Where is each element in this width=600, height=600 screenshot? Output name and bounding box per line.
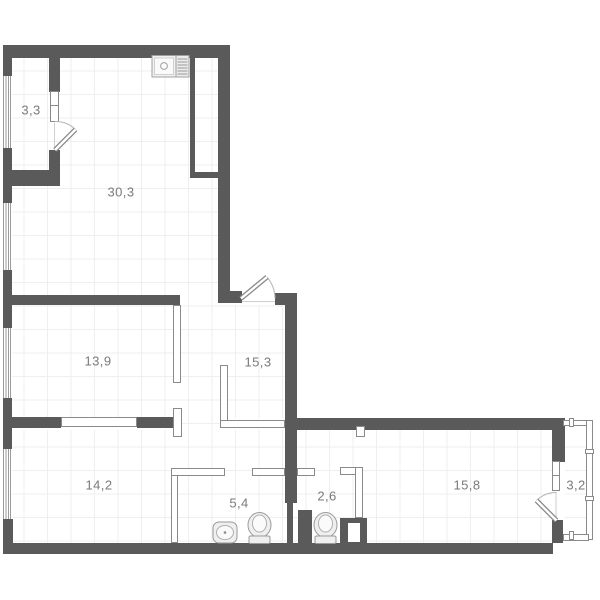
wall-band-left-b [137,417,175,428]
room-label-kitchen-living: 30,3 [108,185,135,200]
partition-bedrooms-infill [61,417,137,427]
wall-entrance-jamb-right [275,293,297,305]
wall-hall-right [285,305,297,503]
window-kitchen-balcony [50,91,59,122]
room-label-hallway: 15,3 [245,355,272,370]
partition-bath-left [171,468,178,543]
partition-hall-vertical [220,365,228,428]
wall-balcony-bottom [3,170,60,186]
room-label-bedroom-bottom-left: 14,2 [86,478,113,493]
wall-entrance-jamb-left [218,291,242,303]
room-label-balcony-right: 3,2 [566,478,585,493]
window-living [3,203,12,270]
partition-bedroom-left-upper [173,305,181,383]
wall-bath-divider-lower [287,503,293,543]
floor-plan: 3,3 30,3 13,9 15,3 14,2 5,4 2,6 15,8 3,2 [0,0,600,600]
glazing-tick [585,496,594,501]
window-bedroom-balcony [552,461,560,491]
wall-wc-duct-left [298,510,312,543]
partition-bedroom-left-cap [173,408,182,437]
floor-passage-living-hall [180,295,218,305]
room-label-bedroom-bottom-right: 15,8 [454,478,481,493]
partition-bath-top-right [252,468,285,476]
glazing-tick [569,418,574,427]
wall-band-left-a [3,417,61,428]
glazing-tick [569,531,574,540]
partition-wc-top-left [297,468,315,476]
wall-right-bedroom-bottom [552,520,563,543]
room-label-wc: 2,6 [317,489,336,504]
duct-notch [348,523,360,542]
wall [3,45,12,76]
room-label-bedroom-left: 13,9 [85,354,112,369]
balcony-glazing-bottom [563,534,589,541]
window-balcony-left [3,76,12,148]
partition-tick [356,426,365,437]
room-label-bathroom: 5,4 [229,496,248,511]
partition-bath-top-left [171,468,225,476]
room-label-balcony-top-left: 3,3 [21,103,40,118]
window-bedroom-left [3,328,12,398]
partition-wc-right [355,467,363,518]
balcony-glazing-right [586,420,593,540]
door-entrance [241,277,275,299]
wall-bottom [3,543,553,554]
glazing-tick [585,449,594,454]
wall-shaft-vertical [190,58,195,172]
partition-hall-horizontal [220,420,285,428]
wall-right-upper-block [218,45,230,295]
floor-passage-hall-corridor [182,418,220,430]
wall-balcony-divider [49,58,60,92]
wall-balcony-divider-jamb [49,150,60,170]
wall-bedroom-left-top [10,295,180,305]
wall [3,45,230,58]
wall-band-right [285,418,552,430]
window-bedroom-bottom-left [3,449,12,519]
